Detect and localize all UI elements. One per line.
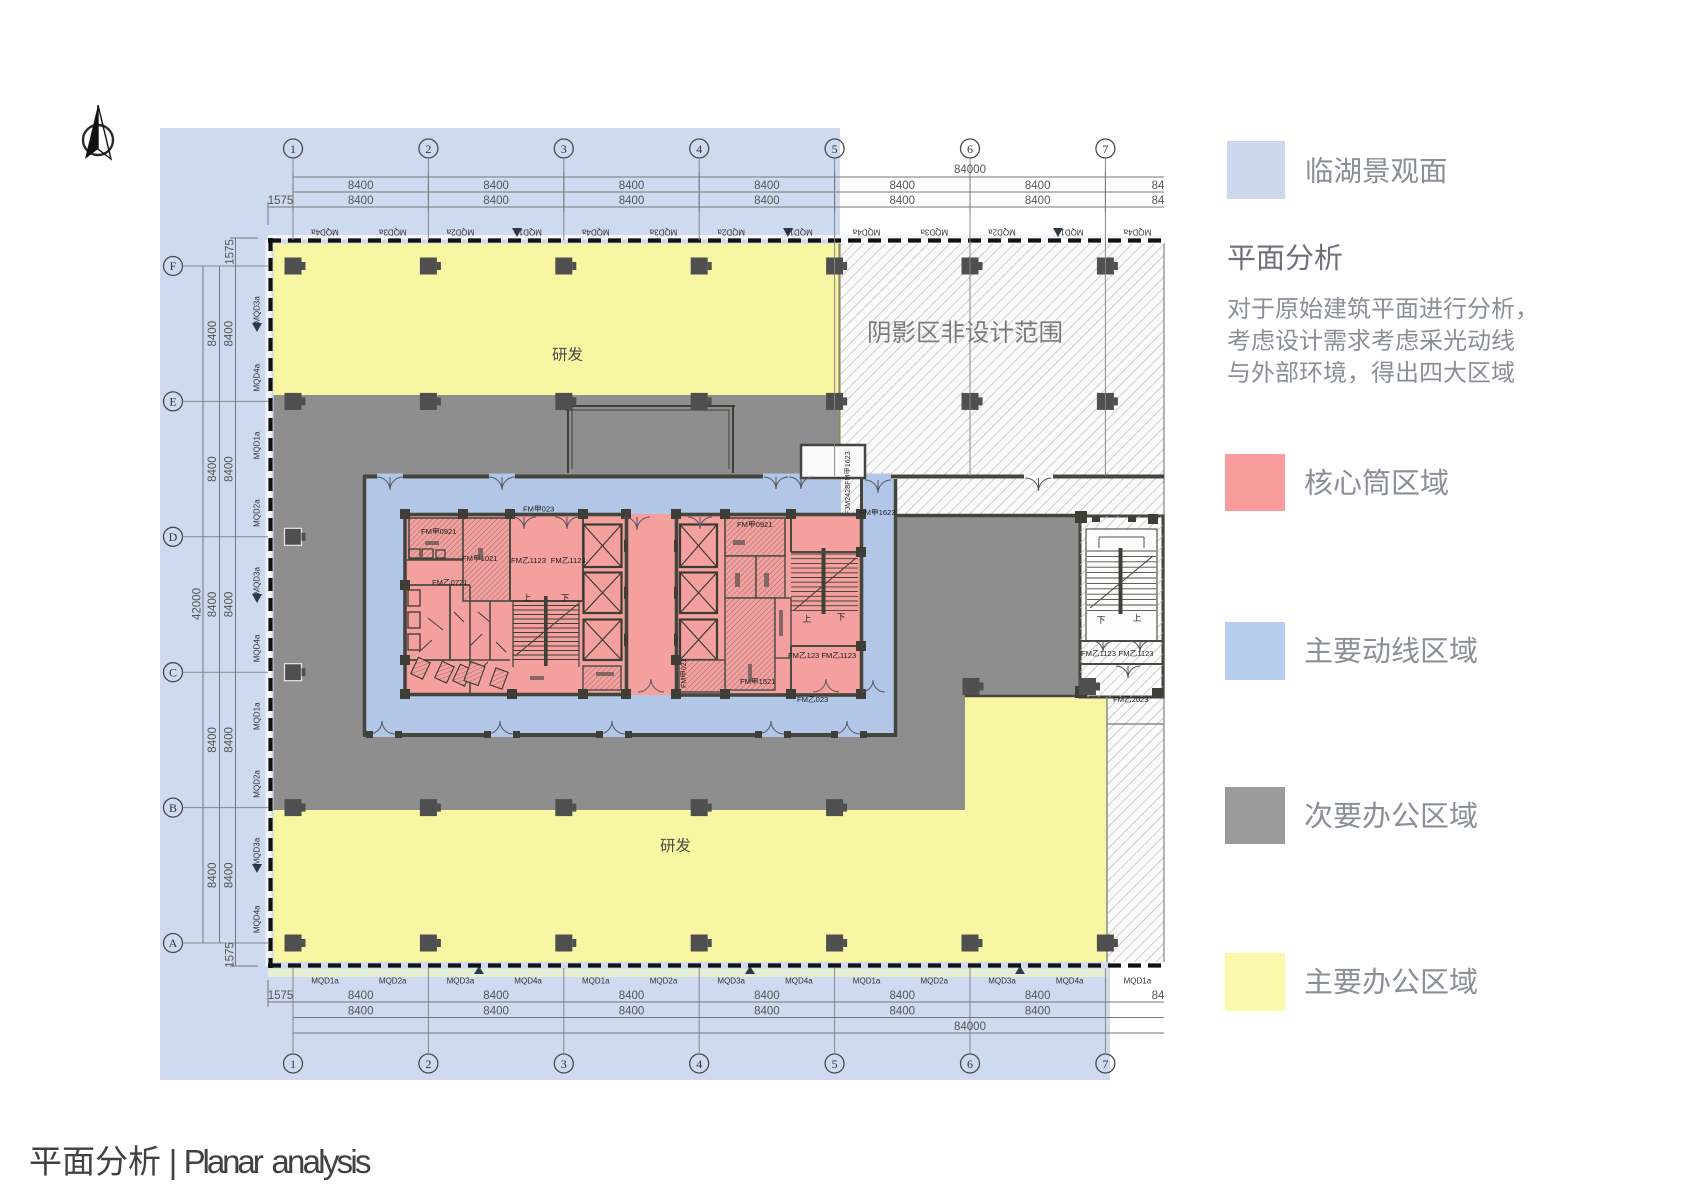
- svg-text:8400: 8400: [207, 727, 219, 753]
- svg-text:MQD2a: MQD2a: [379, 977, 407, 986]
- svg-text:MQD4a: MQD4a: [785, 977, 813, 986]
- svg-text:8400: 8400: [619, 180, 645, 192]
- svg-text:MQD3a: MQD3a: [447, 977, 475, 986]
- svg-text:8400: 8400: [207, 321, 219, 347]
- svg-text:84: 84: [1152, 195, 1165, 207]
- svg-text:1575: 1575: [268, 195, 294, 207]
- svg-text:|: |: [169, 1143, 178, 1180]
- svg-text:FM: FM: [523, 505, 534, 514]
- svg-text:MQD3a: MQD3a: [253, 837, 262, 865]
- svg-text:MQD4a: MQD4a: [253, 905, 262, 933]
- svg-text:8400: 8400: [224, 863, 236, 889]
- svg-text:B: B: [169, 801, 177, 815]
- svg-text:Planar: Planar: [184, 1143, 264, 1180]
- svg-text:MQD4a: MQD4a: [253, 634, 262, 662]
- svg-text:8400: 8400: [754, 180, 780, 192]
- svg-text:8400: 8400: [224, 456, 236, 482]
- svg-text:8400: 8400: [619, 1006, 645, 1018]
- svg-text:D: D: [169, 530, 178, 544]
- svg-text:1123: 1123: [840, 651, 856, 660]
- svg-text:A: A: [169, 936, 178, 950]
- svg-text:FM: FM: [821, 651, 832, 660]
- svg-text:8400: 8400: [483, 180, 509, 192]
- svg-text:MQD4a: MQD4a: [1056, 977, 1084, 986]
- svg-text:123: 123: [807, 651, 820, 660]
- svg-text:8400: 8400: [754, 195, 780, 207]
- svg-text:C: C: [169, 665, 177, 679]
- svg-text:8400: 8400: [1025, 180, 1051, 192]
- svg-text:2: 2: [425, 1057, 431, 1071]
- svg-text:8400: 8400: [224, 727, 236, 753]
- svg-text:4: 4: [696, 142, 702, 156]
- svg-text:FM: FM: [1081, 649, 1092, 658]
- svg-text:FM: FM: [1119, 649, 1130, 658]
- svg-text:FM: FM: [788, 651, 799, 660]
- svg-text:3: 3: [561, 1057, 567, 1071]
- svg-text:FM: FM: [551, 556, 562, 565]
- svg-text:84000: 84000: [954, 164, 986, 176]
- svg-text:1: 1: [290, 142, 296, 156]
- svg-text:FJM2428FM: FJM2428FM: [843, 474, 852, 514]
- svg-text:1021: 1021: [481, 554, 498, 563]
- svg-text:2023: 2023: [1132, 695, 1149, 704]
- svg-text:1623: 1623: [843, 451, 852, 467]
- svg-text:MQD1a: MQD1a: [785, 228, 813, 237]
- svg-text:MQD1a: MQD1a: [582, 977, 610, 986]
- svg-text:1123: 1123: [1137, 649, 1153, 658]
- svg-text:42000: 42000: [192, 588, 204, 620]
- svg-text:FM: FM: [511, 556, 522, 565]
- svg-text:1575: 1575: [225, 942, 237, 968]
- svg-text:F: F: [170, 259, 177, 273]
- svg-text:FM: FM: [797, 695, 808, 704]
- svg-text:FM: FM: [1113, 695, 1124, 704]
- svg-text:0921: 0921: [440, 527, 457, 536]
- svg-text:8400: 8400: [890, 195, 916, 207]
- svg-text:MQD4a: MQD4a: [311, 228, 339, 237]
- svg-text:1521: 1521: [759, 677, 776, 686]
- svg-text:8400: 8400: [224, 321, 236, 347]
- svg-text:8400: 8400: [207, 592, 219, 618]
- svg-text:7: 7: [1102, 1057, 1108, 1071]
- svg-text:8400: 8400: [483, 1006, 509, 1018]
- svg-text:MQD1a: MQD1a: [253, 431, 262, 459]
- svg-text:8400: 8400: [348, 180, 374, 192]
- svg-text:MQD4a: MQD4a: [852, 228, 880, 237]
- svg-text:1575: 1575: [225, 239, 237, 265]
- svg-text:8400: 8400: [483, 195, 509, 207]
- svg-text:FM: FM: [860, 508, 871, 517]
- svg-text:8400: 8400: [207, 456, 219, 482]
- svg-text:8400: 8400: [619, 990, 645, 1002]
- svg-text:023: 023: [816, 695, 829, 704]
- svg-text:MQD4a: MQD4a: [1123, 228, 1151, 237]
- svg-text:1623: 1623: [879, 508, 896, 517]
- svg-text:analysis: analysis: [271, 1143, 371, 1180]
- svg-text:MQD3a: MQD3a: [988, 977, 1016, 986]
- svg-text:84: 84: [1152, 180, 1165, 192]
- svg-text:MQD3a: MQD3a: [649, 228, 677, 237]
- svg-text:MQD2a: MQD2a: [650, 977, 678, 986]
- svg-text:MQD2a: MQD2a: [446, 228, 474, 237]
- svg-text:0921: 0921: [756, 520, 773, 529]
- svg-text:8400: 8400: [1025, 990, 1051, 1002]
- svg-text:MQD1a: MQD1a: [1055, 228, 1083, 237]
- svg-text:8400: 8400: [483, 990, 509, 1002]
- svg-text:8400: 8400: [348, 195, 374, 207]
- svg-text:8400: 8400: [348, 990, 374, 1002]
- svg-text:6: 6: [967, 142, 973, 156]
- svg-text:MQD3a: MQD3a: [253, 296, 262, 324]
- svg-text:FM: FM: [679, 678, 688, 688]
- svg-text:E: E: [169, 395, 176, 409]
- svg-text:FM: FM: [432, 578, 443, 587]
- svg-text:84: 84: [1152, 990, 1165, 1002]
- svg-text:MQD2a: MQD2a: [253, 499, 262, 527]
- svg-text:8400: 8400: [1025, 1006, 1051, 1018]
- svg-text:023: 023: [542, 505, 555, 514]
- svg-text:6: 6: [967, 1057, 973, 1071]
- svg-text:MQD3a: MQD3a: [920, 228, 948, 237]
- svg-text:MQD2a: MQD2a: [253, 770, 262, 798]
- svg-text:MQD1a: MQD1a: [311, 977, 339, 986]
- svg-text:8400: 8400: [224, 592, 236, 618]
- svg-text:7: 7: [1102, 142, 1108, 156]
- svg-text:8400: 8400: [890, 990, 916, 1002]
- svg-text:8400: 8400: [754, 990, 780, 1002]
- svg-text:MQD4a: MQD4a: [253, 363, 262, 391]
- svg-text:MQD3a: MQD3a: [717, 977, 745, 986]
- svg-text:3: 3: [561, 142, 567, 156]
- svg-text:1123: 1123: [530, 556, 546, 565]
- svg-text:MQD1a: MQD1a: [253, 702, 262, 730]
- svg-text:1123: 1123: [1100, 649, 1116, 658]
- svg-text:0721: 0721: [451, 578, 468, 587]
- svg-text:MQD2a: MQD2a: [717, 228, 745, 237]
- svg-text:MQD2a: MQD2a: [988, 228, 1016, 237]
- svg-text:MQD3a: MQD3a: [253, 566, 262, 594]
- svg-text:5: 5: [832, 142, 838, 156]
- svg-text:2: 2: [425, 142, 431, 156]
- svg-text:1123: 1123: [569, 556, 585, 565]
- svg-text:8400: 8400: [619, 195, 645, 207]
- svg-text:5: 5: [832, 1057, 838, 1071]
- svg-text:FM: FM: [421, 527, 432, 536]
- svg-text:MQD2a: MQD2a: [921, 977, 949, 986]
- svg-text:84000: 84000: [954, 1021, 986, 1033]
- svg-text:MQD4a: MQD4a: [514, 977, 542, 986]
- svg-text:8400: 8400: [348, 1006, 374, 1018]
- svg-text:8400: 8400: [890, 1006, 916, 1018]
- svg-text:MQD1a: MQD1a: [853, 977, 881, 986]
- svg-text:021: 021: [679, 658, 688, 670]
- svg-text:8400: 8400: [890, 180, 916, 192]
- svg-text:8400: 8400: [754, 1006, 780, 1018]
- svg-text:8400: 8400: [207, 863, 219, 889]
- svg-text:MQD1a: MQD1a: [514, 228, 542, 237]
- svg-text:1: 1: [290, 1057, 296, 1071]
- svg-text:MQD3a: MQD3a: [378, 228, 406, 237]
- svg-text:8400: 8400: [1025, 195, 1051, 207]
- svg-text:1575: 1575: [268, 990, 294, 1002]
- svg-text:FM: FM: [462, 554, 473, 563]
- svg-text:MQD1a: MQD1a: [1124, 977, 1152, 986]
- svg-text:4: 4: [696, 1057, 702, 1071]
- svg-text:MQD4a: MQD4a: [581, 228, 609, 237]
- svg-text:FM: FM: [737, 520, 748, 529]
